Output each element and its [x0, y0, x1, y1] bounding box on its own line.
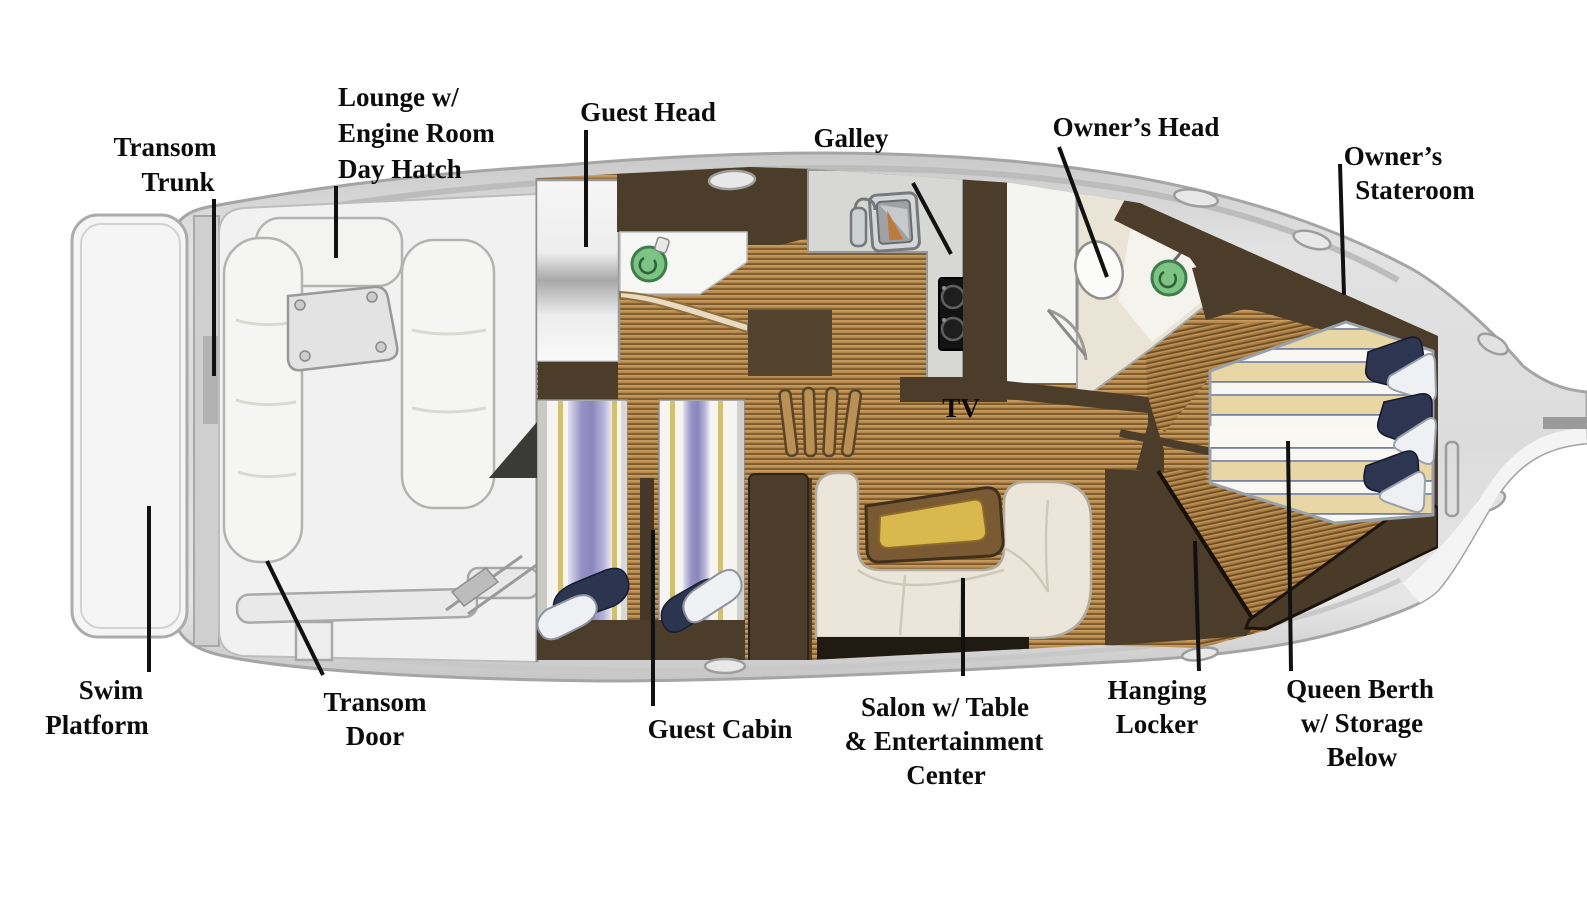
- svg-text:Trunk: Trunk: [141, 167, 214, 197]
- svg-text:Center: Center: [906, 760, 985, 790]
- svg-text:Hanging: Hanging: [1107, 675, 1207, 705]
- svg-text:Salon w/ Table: Salon w/ Table: [861, 692, 1029, 722]
- svg-text:Below: Below: [1327, 742, 1398, 772]
- svg-text:Galley: Galley: [814, 123, 889, 153]
- svg-text:Day Hatch: Day Hatch: [338, 154, 462, 184]
- svg-text:Stateroom: Stateroom: [1355, 175, 1475, 205]
- svg-text:Guest Cabin: Guest Cabin: [648, 714, 793, 744]
- svg-text:Owner’s: Owner’s: [1344, 141, 1442, 171]
- svg-text:& Entertainment: & Entertainment: [845, 726, 1044, 756]
- svg-text:Swim: Swim: [79, 675, 144, 705]
- svg-text:Door: Door: [346, 721, 404, 751]
- svg-text:Lounge w/: Lounge w/: [338, 82, 459, 112]
- svg-text:Owner’s Head: Owner’s Head: [1053, 112, 1220, 142]
- svg-text:Transom: Transom: [113, 132, 217, 162]
- svg-text:TV: TV: [942, 393, 980, 423]
- svg-text:Locker: Locker: [1116, 709, 1198, 739]
- svg-text:Platform: Platform: [45, 710, 149, 740]
- svg-text:Guest Head: Guest Head: [580, 97, 716, 127]
- svg-text:Queen Berth: Queen Berth: [1286, 674, 1434, 704]
- svg-text:Transom: Transom: [323, 687, 427, 717]
- svg-text:Engine Room: Engine Room: [338, 118, 495, 148]
- svg-text:w/ Storage: w/ Storage: [1301, 708, 1423, 738]
